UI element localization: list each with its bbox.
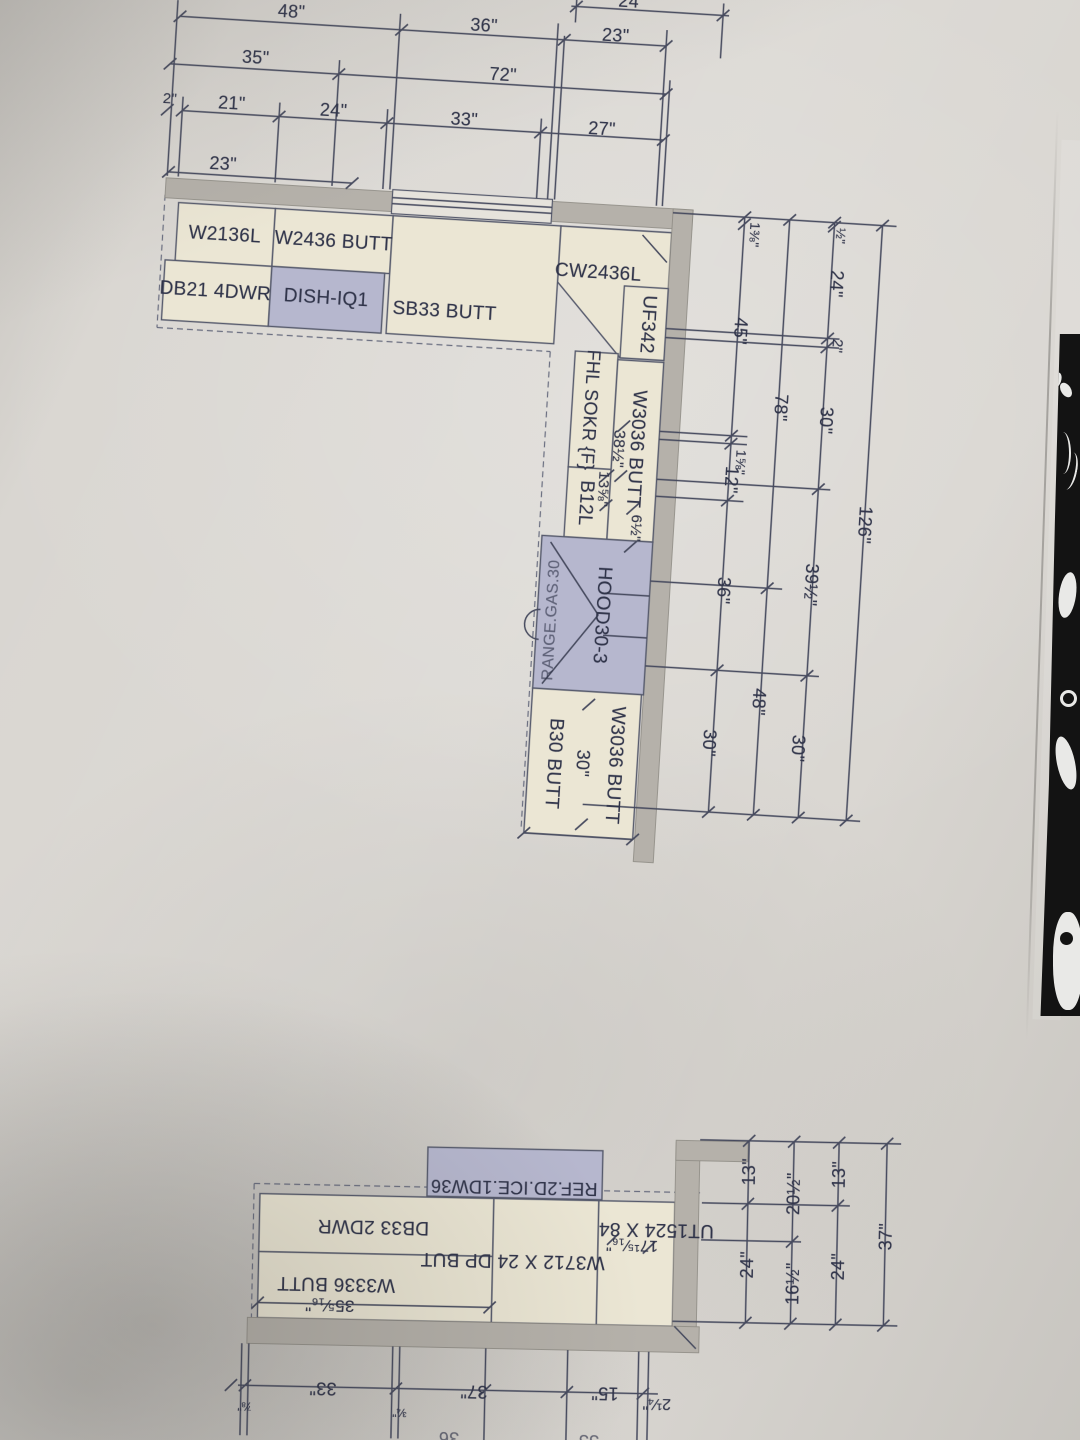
cabinet-label: RANGE.GAS.30 — [539, 559, 564, 681]
background-pattern — [1052, 735, 1080, 792]
dimension-label: 30" — [786, 734, 809, 763]
dimension-label: 37" — [875, 1223, 897, 1251]
dimension-label: 126" — [853, 506, 876, 545]
dimension-label: 15" — [591, 1382, 619, 1404]
dimension-label: 17¹⁵⁄₁₆" — [606, 1235, 659, 1254]
cabinet-label: UF342 — [634, 295, 660, 355]
plan-line — [575, 0, 577, 22]
background-pattern — [1056, 571, 1079, 619]
background-pattern — [1060, 932, 1073, 945]
dimension-label: 38½" — [607, 429, 627, 468]
cabinet-label: REF.2D.ICE.1DW36 — [431, 1175, 598, 1199]
cabinet-label: DB33 2DWR — [317, 1214, 429, 1238]
dimension-label: 33" — [309, 1377, 337, 1399]
dimension-label: 23" — [209, 153, 238, 176]
dimension-label: 24" — [737, 1251, 759, 1279]
dimension-label: 39½" — [799, 563, 823, 607]
dimension-label: 13" — [739, 1158, 761, 1186]
background-pattern — [1053, 912, 1080, 1010]
dimension-label: 78" — [769, 393, 792, 422]
dimension-label: 30" — [697, 729, 720, 758]
photographed-kitchen-plan: W2136LW2436 BUTTDB21 4DWRDISH-IQ1SB33 BU… — [0, 0, 1080, 1440]
cabinet-label: FHL SOKR {F} — [576, 349, 604, 471]
dimension-label: 6½" — [626, 514, 645, 542]
dimension-label: 48" — [277, 1, 306, 24]
cabinet-label: DISH-IQ1 — [283, 285, 369, 312]
background-ring — [1060, 690, 1077, 707]
cabinet-label: CW2436L — [554, 260, 642, 287]
cabinet-label: W3336 BUTT — [277, 1271, 396, 1295]
dimension-label: 24 — [618, 0, 640, 13]
cabinet-label: HOOD30-3 — [587, 566, 615, 665]
dimension-label: 48" — [747, 688, 770, 717]
dimension-label: 33" — [450, 109, 479, 132]
dimension-label: 21" — [218, 92, 247, 115]
dimension-label: 27" — [588, 118, 617, 141]
top-plan-labels: W2136LW2436 BUTTDB21 4DWRDISH-IQ1SB33 BU… — [0, 0, 1080, 1064]
dimension-label: 2" — [828, 338, 846, 353]
bottom-plan-labels: REF.2D.ICE.1DW36DB33 2DWRW3336 BUTTW3712… — [0, 1050, 1080, 1440]
dimension-label: 45" — [729, 317, 752, 346]
plan-line — [571, 6, 729, 16]
dimension-label: 16½" — [782, 1262, 804, 1305]
dimension-label: 72" — [489, 64, 518, 87]
dimension-label: 35⁵⁄₁₆" — [305, 1295, 355, 1316]
dimension-label: 24" — [825, 270, 848, 299]
dimension-label: ½" — [833, 228, 849, 245]
cabinet-label: DB21 4DWR — [159, 278, 272, 307]
dimension-label: 37" — [460, 1380, 488, 1402]
cabinet-label: W3712 X 24 DP BUT — [420, 1247, 605, 1273]
dimension-label: 35" — [241, 47, 270, 70]
dimension-label: 23" — [601, 25, 630, 48]
dimension-label: 13⅝" — [593, 471, 612, 508]
dimension-label: 2" — [162, 90, 177, 108]
cabinet-label: W2436 BUTT — [274, 228, 393, 257]
dimension-label: 36 — [438, 1427, 459, 1440]
cabinet-label: B30 BUTT — [539, 717, 567, 809]
dimension-label: 30" — [814, 406, 837, 435]
dimension-label: 2¼" — [642, 1394, 671, 1413]
bottom-plan-section: REF.2D.ICE.1DW36DB33 2DWRW3336 BUTTW3712… — [0, 1050, 1080, 1440]
dimension-label: 1⅜" — [746, 222, 764, 248]
top-plan-section: W2136LW2436 BUTTDB21 4DWRDISH-IQ1SB33 BU… — [0, 0, 1080, 1064]
cabinet-label: SB33 BUTT — [392, 298, 497, 326]
dimension-label: 33 — [578, 1430, 599, 1440]
dimension-label: 24" — [828, 1253, 850, 1281]
dimension-label: 20½" — [783, 1172, 805, 1215]
dimension-label: 12" — [719, 466, 742, 495]
cabinet-label: W2136L — [188, 222, 262, 248]
dimension-label: 13" — [829, 1161, 851, 1189]
dimension-label: 30" — [571, 749, 594, 778]
dimension-label: 36" — [470, 15, 499, 38]
cabinet-label: W3036 BUTT — [600, 706, 629, 825]
dimension-label: ¾" — [392, 1405, 407, 1419]
dimension-label: ⅞" — [237, 1399, 252, 1413]
dimension-label: 36" — [712, 576, 735, 605]
dimension-label: 24" — [319, 100, 348, 123]
